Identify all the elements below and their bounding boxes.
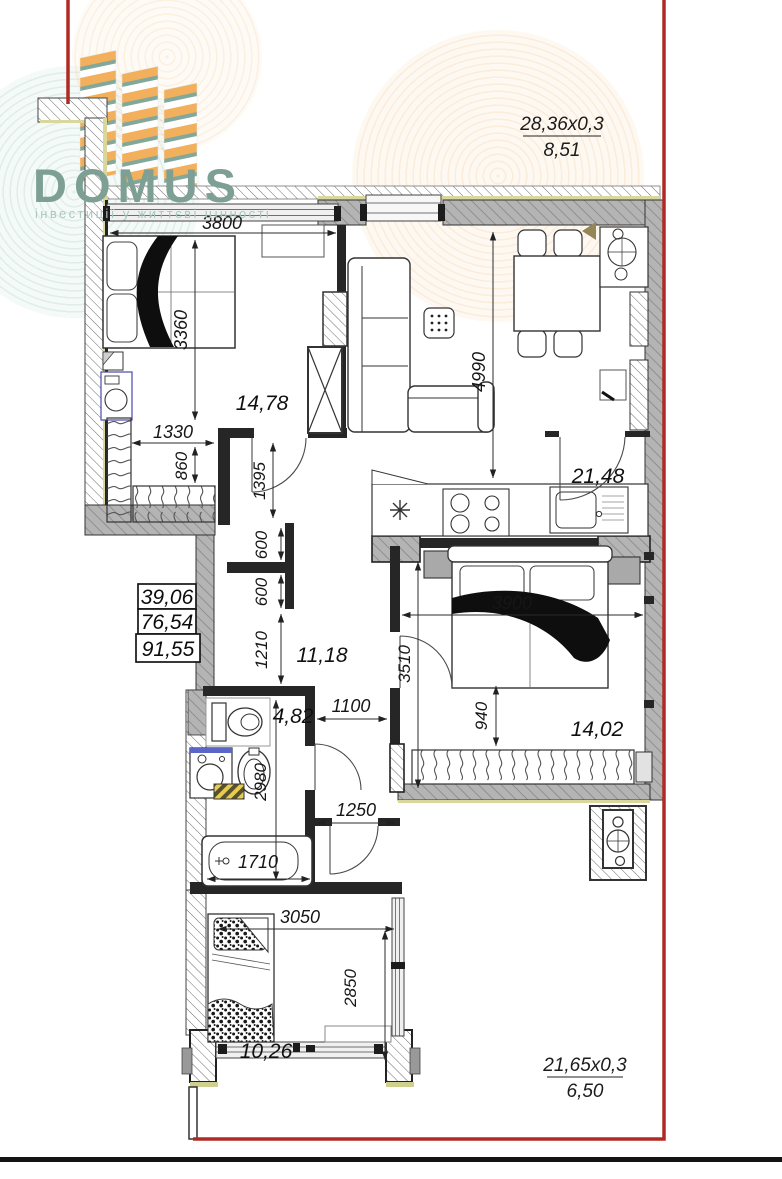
dim-wardrobe-depth: 860	[172, 451, 191, 480]
dim-bathtub-length: 1710	[238, 852, 278, 872]
area-bathroom: 4,82	[273, 705, 314, 728]
dim-hall-depth: 1210	[252, 631, 271, 669]
logo-tagline: інвестиції у життєві цінності	[35, 206, 271, 221]
area-hallway: 11,18	[297, 644, 348, 667]
floor-plan-page: 3800 3360 4990 1330 860 1395 600 600 121…	[0, 0, 782, 1179]
tv-niche-icon	[600, 292, 648, 430]
dim-bed-offset: 940	[472, 701, 491, 730]
area-bedroom-top: 14,78	[236, 392, 289, 415]
summary-apartment-area: 76,54	[141, 611, 194, 634]
dim-bedroom-top-depth: 3360	[171, 310, 191, 350]
area-summary: 39,06 76,54 91,55	[136, 584, 200, 662]
area-bedroom-bottom: 10,26	[240, 1040, 293, 1063]
dim-bathroom-depth: 2980	[251, 763, 270, 802]
dim-door-width: 1250	[336, 800, 376, 820]
wardrobe-right-icon	[412, 750, 652, 784]
door-hall	[330, 826, 378, 874]
dim-hall-width: 1100	[332, 696, 371, 716]
dim-bedroom-bottom-width: 3050	[280, 907, 320, 927]
loggia-fixtures-icon	[101, 352, 132, 420]
fridge-icon	[390, 500, 410, 520]
calc-bottom-formula: 21,65x0,3	[542, 1055, 627, 1076]
dim-wardrobe-width: 1330	[153, 422, 193, 442]
dim-bedroom-right-depth: 3510	[395, 645, 414, 683]
dim-bedroom-bottom-depth: 2850	[341, 969, 360, 1008]
summary-total-area: 91,55	[142, 638, 195, 661]
stove-icon	[443, 489, 509, 536]
wardrobe-cross-icon	[308, 347, 342, 433]
bed-right-icon	[424, 546, 640, 688]
dining-table-icon	[514, 230, 600, 357]
door-bathroom	[315, 744, 361, 790]
dim-niche-b: 600	[252, 577, 271, 606]
dim-living-depth: 4990	[469, 352, 489, 392]
calc-bottom-result: 6,50	[567, 1081, 604, 1102]
sofa-icon	[348, 258, 494, 432]
floor-plan-drawing: 3800 3360 4990 1330 860 1395 600 600 121…	[0, 0, 782, 1179]
window-bedroom-bottom-side	[391, 898, 405, 1036]
calc-top-formula: 28,36x0,3	[519, 114, 604, 135]
domus-logo: DOMUS інвестиції у життєві цінності	[33, 159, 271, 221]
ottoman-icon	[424, 308, 454, 338]
window-sill-icon	[325, 1026, 391, 1042]
window-living	[360, 195, 445, 221]
calc-top-result: 8,51	[544, 140, 581, 161]
single-bed-icon	[208, 914, 274, 1042]
toilet-icon	[206, 698, 270, 746]
water-heater-icon	[214, 784, 244, 799]
bottom-border-line	[0, 1157, 782, 1162]
area-kitchen-living: 21,48	[571, 465, 625, 488]
dim-hall-wall: 1395	[250, 462, 269, 500]
dresser-icon	[262, 225, 324, 257]
dim-niche-a: 600	[252, 530, 271, 559]
dim-bedroom-right-width: 3900	[492, 593, 532, 613]
summary-living-area: 39,06	[141, 586, 194, 609]
area-bedroom-right: 14,02	[571, 718, 624, 741]
logo-brand-text: DOMUS	[33, 159, 243, 212]
double-bed-icon	[103, 236, 235, 348]
